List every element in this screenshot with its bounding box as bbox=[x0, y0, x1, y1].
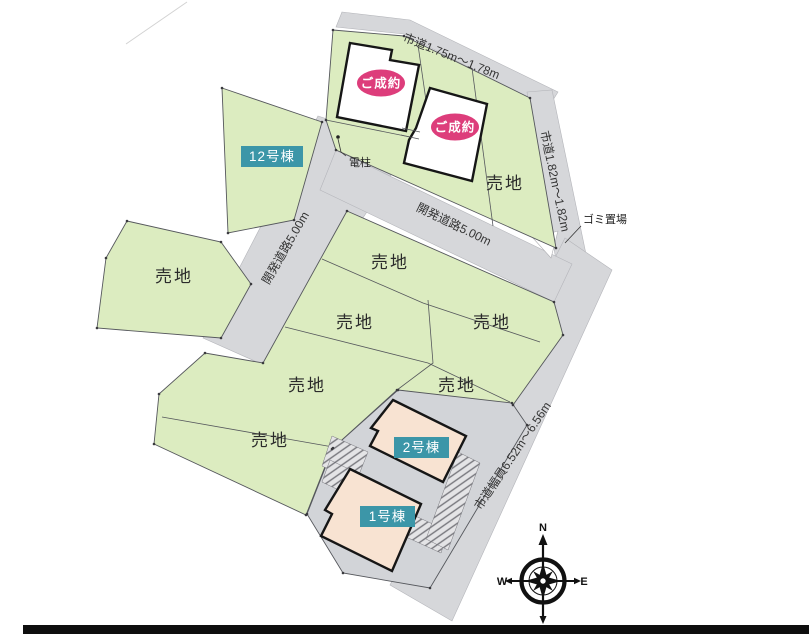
compass-n-label: N bbox=[539, 522, 547, 534]
lot-label: 売地 bbox=[486, 174, 524, 193]
survey-marker-dot bbox=[227, 232, 230, 235]
survey-marker-dot bbox=[346, 210, 349, 213]
lot-label: 売地 bbox=[371, 253, 409, 272]
survey-marker-dot bbox=[511, 402, 514, 405]
sold-badge-label: ご成約 bbox=[361, 76, 402, 91]
survey-marker-dot bbox=[332, 29, 335, 32]
tag-1-label: 1号棟 bbox=[369, 509, 407, 524]
boundary-line bbox=[126, 2, 187, 44]
compass-w-label: W bbox=[497, 576, 508, 588]
survey-marker-dot bbox=[526, 424, 529, 427]
survey-marker-dot bbox=[562, 334, 565, 337]
lot-label: 売地 bbox=[251, 431, 289, 450]
compass-hub bbox=[540, 578, 546, 584]
survey-marker-dot bbox=[221, 87, 224, 90]
survey-marker-dot bbox=[158, 393, 161, 396]
survey-marker-dot bbox=[397, 389, 400, 392]
survey-marker-dot bbox=[293, 219, 296, 222]
survey-marker-dot bbox=[96, 327, 99, 330]
compass-north-arrow bbox=[539, 534, 548, 545]
pole-label: 電柱 bbox=[349, 155, 371, 169]
bottom-border-bar bbox=[23, 625, 809, 634]
lot-label: 売地 bbox=[336, 313, 374, 332]
survey-marker-dot bbox=[306, 513, 309, 516]
tag-12-label: 12号棟 bbox=[249, 149, 295, 164]
survey-marker-dot bbox=[262, 362, 265, 365]
survey-marker-dot bbox=[555, 247, 558, 250]
lot-label: 売地 bbox=[473, 313, 511, 332]
survey-marker-dot bbox=[403, 35, 406, 38]
compass-rose: N S E W bbox=[497, 522, 588, 634]
survey-marker-dot bbox=[321, 121, 324, 124]
site-plan: ご成約 ご成約 12号棟 2号棟 1号棟 売地 売地 売地 売地 売地 売地 売… bbox=[0, 0, 809, 634]
survey-marker-dot bbox=[342, 572, 345, 575]
survey-marker-dot bbox=[335, 149, 338, 152]
survey-marker-dot bbox=[126, 220, 129, 223]
survey-marker-dot bbox=[105, 257, 108, 260]
survey-marker-dot bbox=[204, 352, 207, 355]
sold-badge-label: ご成約 bbox=[435, 120, 476, 135]
lot-label: 売地 bbox=[438, 376, 476, 395]
lot-label: 売地 bbox=[155, 267, 193, 286]
lot-label: 売地 bbox=[288, 376, 326, 395]
survey-marker-dot bbox=[553, 301, 556, 304]
survey-marker-dot bbox=[220, 241, 223, 244]
pole-dot bbox=[336, 135, 340, 139]
tag-2-label: 2号棟 bbox=[403, 440, 441, 455]
survey-marker-dot bbox=[325, 119, 328, 122]
survey-marker-dot bbox=[429, 587, 432, 590]
survey-marker-dot bbox=[250, 283, 253, 286]
survey-marker-dot bbox=[220, 337, 223, 340]
compass-south-arrow bbox=[540, 616, 547, 624]
garbage-label: ゴミ置場 bbox=[583, 212, 627, 226]
compass-e-label: E bbox=[580, 576, 587, 588]
survey-marker-dot bbox=[529, 97, 532, 100]
survey-marker-dot bbox=[153, 443, 156, 446]
survey-marker-dot bbox=[332, 447, 335, 450]
